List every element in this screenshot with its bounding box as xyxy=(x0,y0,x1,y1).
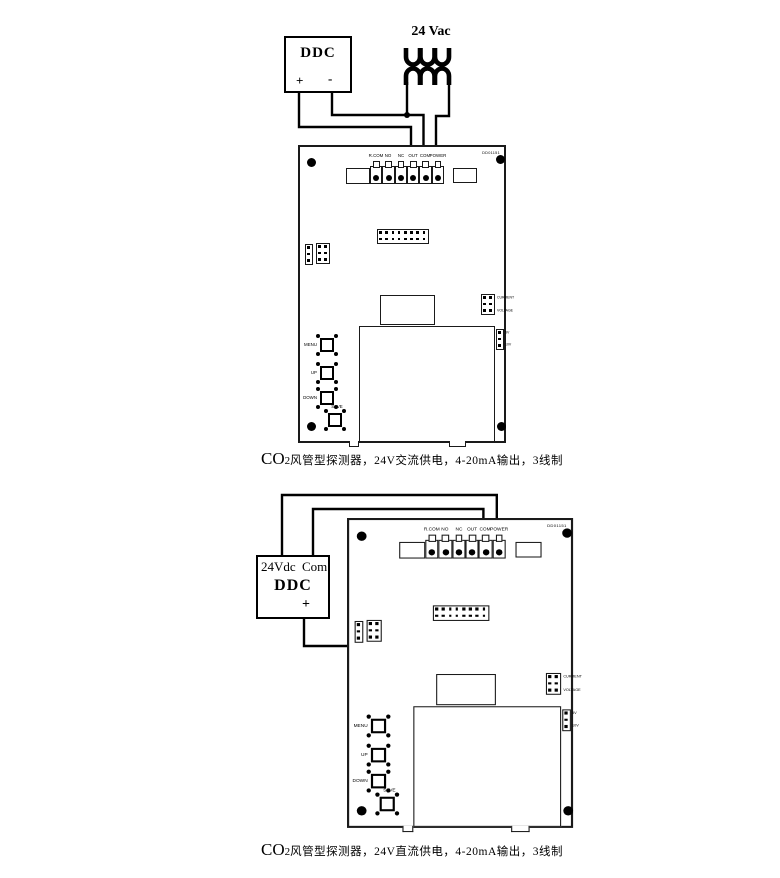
left-header-2x3-pin xyxy=(318,245,321,248)
ddc-com-terminal: Com xyxy=(302,559,327,575)
output-mode-jumper-pin xyxy=(555,682,558,685)
menu-button-pin xyxy=(386,715,390,719)
left-header-1x3-pin xyxy=(357,623,360,626)
pcb-board-ac: R.COMNONCOUTCOMPOWERDD01151CURRENTVOLTAG… xyxy=(298,145,506,443)
down-button-pin xyxy=(316,387,320,391)
save-button-pin xyxy=(324,427,328,431)
main-pin-header-pin xyxy=(404,238,407,241)
menu-button-pin xyxy=(334,334,338,338)
terminal-label-no: NO xyxy=(442,526,449,531)
save-button-pin xyxy=(342,409,346,413)
save-button-label: SAVE xyxy=(380,787,398,792)
main-pin-header-pin xyxy=(469,608,472,611)
down-button-pin xyxy=(367,788,371,792)
main-pin-header-pin xyxy=(462,608,465,611)
left-header-2x3-pin xyxy=(376,629,379,632)
sensor-module-outline xyxy=(359,326,495,442)
mounting-tab-left xyxy=(349,441,359,447)
jumper-label-current: CURRENT xyxy=(563,675,582,679)
terminal-screw-com xyxy=(423,175,429,181)
terminal-label-out: OUT xyxy=(467,526,477,531)
ddc-plus-terminal: + xyxy=(302,597,310,613)
save-button-label: SAVE xyxy=(329,404,346,409)
menu-button xyxy=(320,338,334,352)
output-mode-jumper-pin xyxy=(548,675,551,678)
menu-button-pin xyxy=(316,334,320,338)
save-button-pin xyxy=(324,409,328,413)
main-pin-header-pin xyxy=(398,238,401,241)
menu-button-pin xyxy=(367,715,371,719)
up-button-pin xyxy=(334,362,338,366)
down-button-pin xyxy=(316,405,320,409)
save-button-pin xyxy=(342,427,346,431)
output-mode-jumper-pin xyxy=(555,675,558,678)
output-mode-jumper-pin xyxy=(483,309,486,312)
terminal-screw-power xyxy=(435,175,441,181)
ddc-title: DDC xyxy=(258,577,328,595)
terminal-screw-no xyxy=(442,549,449,555)
mounting-hole-top-left xyxy=(356,531,366,540)
caption-text: 风管型探测器，24V交流供电，4-20mA输出，3线制 xyxy=(290,455,563,467)
terminal-label-rcom: R.COM xyxy=(369,153,384,158)
ddc-box-dc: 24Vdc Com DDC + xyxy=(256,555,330,619)
save-button xyxy=(380,797,395,812)
main-pin-header-pin xyxy=(398,231,401,234)
terminal-notch-no xyxy=(385,161,392,168)
mounting-hole-bottom-left xyxy=(356,806,366,815)
up-button-label: UP xyxy=(350,752,368,757)
up-button xyxy=(371,748,386,763)
left-header-2x3-pin xyxy=(318,258,321,261)
main-pin-header-pin xyxy=(423,231,426,234)
down-button-pin xyxy=(367,770,371,774)
main-pin-header-pin xyxy=(482,614,485,617)
terminal-screw-nc xyxy=(456,549,463,555)
relay-outline xyxy=(380,295,435,325)
caption-co: CO xyxy=(261,840,285,859)
terminal-notch-power xyxy=(496,535,503,542)
main-pin-header-pin xyxy=(469,614,472,617)
jumper-label-voltage: VOLTAGE xyxy=(497,309,513,313)
output-mode-jumper-pin xyxy=(489,309,492,312)
up-button-pin xyxy=(316,380,320,384)
menu-button-pin xyxy=(334,352,338,356)
left-header-1x3-pin xyxy=(357,630,360,633)
transformer-label: 24 Vac xyxy=(403,24,459,40)
main-pin-header-pin xyxy=(385,238,388,241)
wiring-diagram-page: DDC + - 24 Vac R.COMNONCOUTCOMPOWERDD011… xyxy=(0,0,780,878)
terminal-label-power: POWER xyxy=(429,153,446,158)
aux-connector-left xyxy=(346,168,370,184)
main-pin-header-pin xyxy=(392,231,395,234)
main-pin-header-pin xyxy=(416,231,419,234)
left-header-2x3-pin xyxy=(318,252,321,255)
terminal-screw-power xyxy=(496,549,503,555)
left-header-2x3-pin xyxy=(376,622,379,625)
output-mode-jumper-pin xyxy=(483,296,486,299)
left-header-2x3-pin xyxy=(369,636,372,639)
main-pin-header-pin xyxy=(482,608,485,611)
up-button-pin xyxy=(316,362,320,366)
main-pin-header-pin xyxy=(455,608,458,611)
output-mode-jumper-pin xyxy=(489,303,492,306)
main-pin-header-pin xyxy=(449,614,452,617)
left-header-2x3-pin xyxy=(376,636,379,639)
main-pin-header-pin xyxy=(462,614,465,617)
main-pin-header-pin xyxy=(379,231,382,234)
main-pin-header-pin xyxy=(449,608,452,611)
down-button-label: DOWN xyxy=(301,395,318,400)
up-button-pin xyxy=(367,762,371,766)
main-pin-header-pin xyxy=(442,608,445,611)
menu-button-pin xyxy=(367,733,371,737)
menu-button-pin xyxy=(386,733,390,737)
menu-button-pin xyxy=(316,352,320,356)
terminal-label-no: NO xyxy=(385,153,392,158)
jumper-label-voltage: VOLTAGE xyxy=(563,689,580,693)
mounting-hole-top-left xyxy=(307,158,316,167)
up-button xyxy=(320,366,334,380)
jumper-label-5v: 5V xyxy=(572,711,577,715)
caption-ac: CO2风管型探测器，24V交流供电，4-20mA输出，3线制 xyxy=(261,449,563,469)
jumper-label-current: CURRENT xyxy=(497,296,514,300)
aux-connector-right xyxy=(515,542,541,558)
aux-connector-left xyxy=(399,542,425,559)
mounting-hole-bottom-right xyxy=(497,422,506,431)
main-pin-header-pin xyxy=(442,614,445,617)
main-pin-header-pin xyxy=(379,238,382,241)
output-mode-jumper-pin xyxy=(489,296,492,299)
down-button-pin xyxy=(334,387,338,391)
left-header-1x3-pin xyxy=(307,246,310,249)
up-button-pin xyxy=(386,762,390,766)
jumper-label-5v: 5V xyxy=(505,331,509,335)
main-pin-header-pin xyxy=(476,608,479,611)
ddc-minus-terminal: - xyxy=(328,71,332,87)
mounting-tab-left xyxy=(402,826,413,832)
menu-button-label: MENU xyxy=(301,342,318,347)
main-pin-header-pin xyxy=(423,238,426,241)
terminal-screw-com xyxy=(482,549,489,555)
terminal-notch-power xyxy=(435,161,442,168)
range-jumper-pin xyxy=(498,331,501,334)
board-code-label: DD01151 xyxy=(467,151,500,155)
up-button-label: UP xyxy=(301,370,318,375)
terminal-notch-rcom xyxy=(373,161,380,168)
caption-dc: CO2风管型探测器，24V直流供电，4-20mA输出，3线制 xyxy=(261,840,563,860)
up-button-pin xyxy=(334,380,338,384)
range-jumper-pin xyxy=(565,712,568,715)
main-pin-header-pin xyxy=(404,231,407,234)
main-pin-header-pin xyxy=(476,614,479,617)
output-mode-jumper-pin xyxy=(548,682,551,685)
menu-button-label: MENU xyxy=(350,723,368,728)
ddc-title: DDC xyxy=(286,45,350,62)
save-button-pin xyxy=(375,811,379,815)
left-header-1x3-pin xyxy=(307,253,310,256)
transformer-24vac xyxy=(406,48,449,85)
terminal-screw-no xyxy=(386,175,392,181)
range-jumper-pin xyxy=(498,344,501,347)
down-button xyxy=(320,391,334,405)
ddc-box-ac: DDC + - xyxy=(284,36,352,93)
mounting-hole-bottom-left xyxy=(307,422,316,431)
terminal-notch-nc xyxy=(455,535,462,542)
terminal-label-rcom: R.COM xyxy=(424,526,440,531)
main-pin-header-pin xyxy=(410,238,413,241)
left-header-2x3-pin xyxy=(369,629,372,632)
terminal-notch-no xyxy=(442,535,449,542)
mounting-hole-bottom-right xyxy=(563,806,573,815)
terminal-notch-out xyxy=(469,535,476,542)
left-header-2x3-pin xyxy=(324,252,327,255)
output-mode-jumper-pin xyxy=(548,689,551,692)
caption-co: CO xyxy=(261,449,285,468)
save-button-pin xyxy=(395,793,399,797)
mounting-hole-top-right xyxy=(562,528,572,537)
main-pin-header-pin xyxy=(385,231,388,234)
main-pin-header-pin xyxy=(392,238,395,241)
menu-button xyxy=(371,719,386,734)
aux-connector-right xyxy=(453,168,477,183)
terminal-notch-com xyxy=(482,535,489,542)
mounting-tab-right xyxy=(449,441,466,447)
jumper-label-10v: 10V xyxy=(505,343,511,347)
terminal-label-out: OUT xyxy=(409,153,418,158)
output-mode-jumper-pin xyxy=(555,689,558,692)
down-button-pin xyxy=(386,770,390,774)
ddc-24vdc-terminal: 24Vdc xyxy=(261,559,296,575)
mounting-hole-top-right xyxy=(496,155,505,164)
terminal-notch-out xyxy=(410,161,417,168)
main-pin-header-pin xyxy=(435,614,438,617)
pcb-board-dc: R.COMNONCOUTCOMPOWERDD01151CURRENTVOLTAG… xyxy=(347,518,573,828)
jumper-label-10v: 10V xyxy=(572,724,579,728)
terminal-screw-nc xyxy=(398,175,404,181)
range-jumper-pin xyxy=(498,338,501,341)
range-jumper-pin xyxy=(565,718,568,721)
board-code-label: DD01151 xyxy=(531,524,567,528)
caption-text: 风管型探测器，24V直流供电，4-20mA输出，3线制 xyxy=(290,846,563,858)
up-button-pin xyxy=(367,744,371,748)
save-button xyxy=(328,413,342,427)
terminal-label-nc: NC xyxy=(398,153,404,158)
terminal-notch-nc xyxy=(398,161,405,168)
save-button-pin xyxy=(375,793,379,797)
left-header-1x3-pin xyxy=(307,259,310,262)
main-pin-header-pin xyxy=(455,614,458,617)
main-pin-header-pin xyxy=(416,238,419,241)
sensor-module-outline xyxy=(413,706,561,827)
ddc-plus-terminal: + xyxy=(296,73,303,89)
junction-dot xyxy=(404,112,410,118)
terminal-label-nc: NC xyxy=(455,526,462,531)
mounting-tab-right xyxy=(511,826,529,832)
left-header-1x3-pin xyxy=(357,637,360,640)
up-button-pin xyxy=(386,744,390,748)
terminal-notch-rcom xyxy=(429,535,436,542)
range-jumper-pin xyxy=(565,725,568,728)
output-mode-jumper-pin xyxy=(483,303,486,306)
save-button-pin xyxy=(395,811,399,815)
left-header-2x3-pin xyxy=(369,622,372,625)
terminal-notch-com xyxy=(422,161,429,168)
left-header-2x3-pin xyxy=(324,245,327,248)
down-button-label: DOWN xyxy=(350,778,368,783)
main-pin-header-pin xyxy=(410,231,413,234)
down-button xyxy=(371,774,386,789)
left-header-2x3-pin xyxy=(324,258,327,261)
relay-outline xyxy=(436,674,496,705)
main-pin-header-pin xyxy=(435,608,438,611)
terminal-label-power: POWER xyxy=(490,526,508,531)
